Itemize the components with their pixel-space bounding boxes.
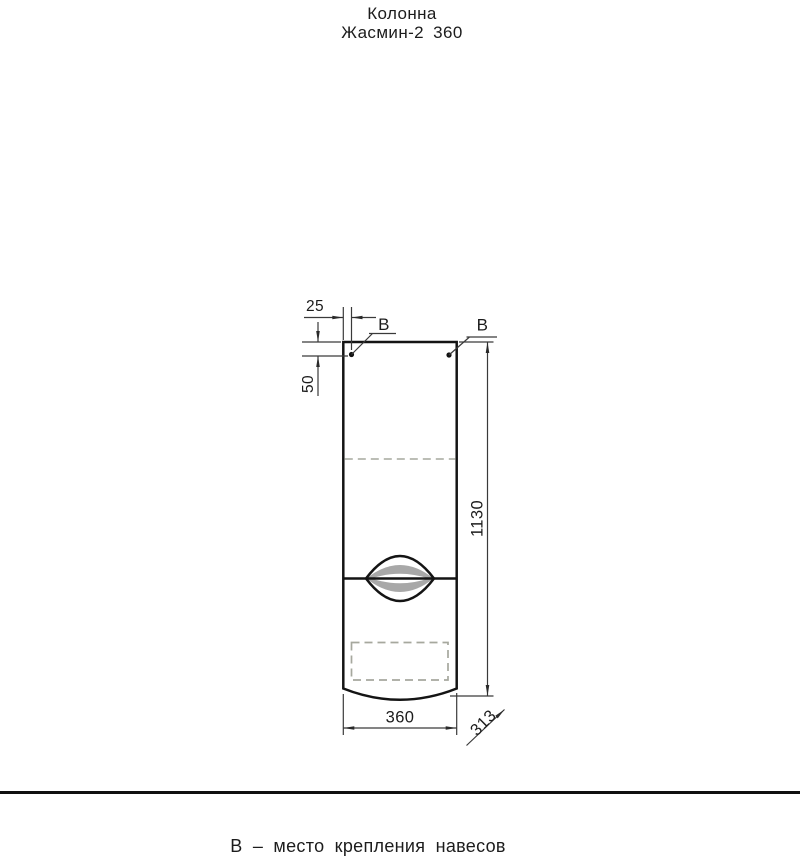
dim-25-arrow-left [332,316,343,320]
dim-360-arrow-left [343,726,354,730]
dim-1130-arrow-bottom [486,685,490,696]
footer-divider-line [0,791,800,794]
dim-360-arrow-right [446,726,457,730]
cabinet-outline [343,342,456,700]
dim-360-value: 360 [386,709,415,727]
legend-note: В – место крепления навесов [230,836,506,857]
dim-50-extension-lines [302,342,348,356]
mount-label-right: В [477,316,489,335]
blueprint-page: Колонна Жасмин-2 360 В В 25 [0,0,800,862]
mount-leader-left [352,334,397,355]
dim-50-arrow-top [316,331,320,342]
dim-50-value: 50 [300,375,317,393]
dim-1130-value: 1130 [469,500,487,537]
mount-label-left: В [378,315,390,334]
drawer-dashed-outline [352,643,449,681]
dim-1130-arrow-top [486,342,490,353]
dim-50-arrow-bottom [316,356,320,367]
cabinet-technical-drawing: В В 25 50 1130 360 313 [0,0,800,800]
dim-25-value: 25 [306,298,324,315]
dim-313-value: 313 [467,706,500,739]
dim-25-arrow-right [352,316,363,320]
